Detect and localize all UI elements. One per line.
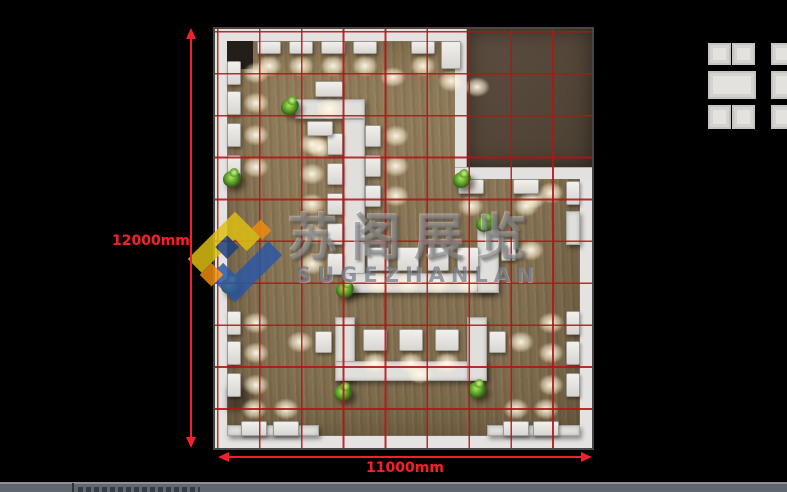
meeting-room-table: [708, 71, 756, 99]
booth-seat: [241, 421, 267, 436]
booth-seat: [227, 61, 241, 85]
booth-seat: [363, 329, 387, 351]
booth-seat: [257, 41, 281, 54]
meeting-room-wall-bottom: [455, 167, 592, 179]
vertical-dimension-label: 12000mm: [112, 233, 190, 249]
meeting-room: [455, 29, 592, 179]
booth-seat: [227, 373, 241, 397]
booth-seat: [435, 329, 459, 351]
taskbar-divider: [72, 483, 74, 492]
meeting-room-table: [771, 105, 787, 129]
booth-seat: [566, 341, 580, 365]
booth-seat: [321, 41, 345, 54]
booth-seat: [566, 373, 580, 397]
booth-seat: [566, 311, 580, 335]
meeting-room-table: [732, 43, 755, 65]
meeting-room-table: [771, 71, 787, 99]
booth-seat: [227, 91, 241, 115]
partition-counter: [566, 211, 580, 245]
meeting-room-table: [708, 105, 731, 129]
booth-seat: [307, 121, 333, 136]
meeting-room-floor: [467, 29, 592, 167]
booth-seat: [533, 421, 559, 436]
booth-seat: [353, 41, 377, 54]
booth-seat: [365, 185, 381, 207]
booth-seat: [399, 329, 423, 351]
booth-seat: [441, 41, 461, 69]
booth-seat: [503, 421, 529, 436]
booth-seat: [327, 163, 343, 185]
booth-seat: [315, 81, 343, 97]
watermark-latin-text: SUGEZHANLAN: [296, 263, 576, 287]
booth-seat: [273, 421, 299, 436]
booth-seat: [365, 125, 381, 147]
booth-seat: [365, 155, 381, 177]
booth-seat: [513, 179, 539, 194]
screenshot-canvas: 苏阁展览 SUGEZHANLAN 12000mm 11000mm: [0, 0, 787, 492]
partition-counter: [467, 317, 487, 381]
horizontal-dimension-line: [227, 456, 583, 458]
arrowhead-down-icon: [186, 437, 196, 448]
horizontal-dimension-label: 11000mm: [345, 460, 465, 476]
booth-seat: [411, 41, 435, 54]
booth-seat: [227, 341, 241, 365]
meeting-room-table: [732, 105, 755, 129]
taskbar-clipped-text: [78, 487, 200, 492]
arrowhead-right-icon: [581, 452, 592, 462]
booth-seat: [489, 331, 506, 353]
arrowhead-left-icon: [218, 452, 229, 462]
booth-seat: [566, 181, 580, 205]
arrowhead-up-icon: [186, 28, 196, 39]
taskbar[interactable]: [0, 482, 787, 492]
partition-counter: [335, 361, 487, 381]
booth-seat: [315, 331, 332, 353]
vertical-dimension-line: [190, 36, 192, 438]
booth-seat: [327, 133, 343, 155]
booth-seat: [289, 41, 313, 54]
watermark-chinese-text: 苏阁展览: [288, 213, 568, 263]
meeting-room-table: [771, 43, 787, 65]
booth-seat: [227, 123, 241, 147]
partition-counter: [295, 99, 365, 119]
meeting-room-table: [708, 43, 731, 65]
